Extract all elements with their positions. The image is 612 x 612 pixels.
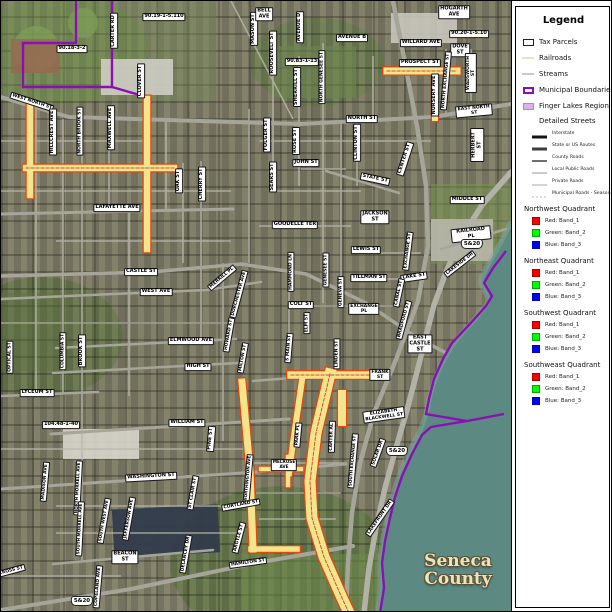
street-class-label: Interstate (552, 131, 574, 136)
street-label: SHERRILL ST (293, 67, 301, 107)
band-item: Green: Band_2 (532, 227, 605, 239)
street-label: JOHN ST (292, 159, 319, 167)
band-label: Blue: Band_3 (545, 346, 581, 352)
band-color-swatch (532, 241, 540, 249)
street-label: CLINTON ST (353, 124, 361, 162)
street-label: LEWIS ST (351, 246, 381, 254)
street-label: GENESEE ST (322, 253, 329, 288)
parcel-id-label: 90.19-1-5.110 (142, 13, 185, 21)
street-class-label: County Roads (552, 155, 584, 160)
detailed-streets-header: Detailed Streets (539, 117, 605, 125)
street-label: WILLARD AVE (400, 39, 442, 47)
street-label: EXCHANGE PL (348, 303, 379, 315)
legend-item: Railroads (522, 50, 605, 66)
route-shield-5-20: 5&20 (71, 596, 93, 606)
band-label: Blue: Band_3 (545, 242, 581, 248)
band-item: Blue: Band_3 (532, 395, 605, 407)
street-label: CLOVER ST (137, 64, 145, 99)
legend-swatch-icon (522, 54, 534, 62)
street-label: LAFAYETTE AVE (93, 204, 140, 212)
map-canvas: CARTER RDMASON STBELL AVEAVENUE DHOGARTH… (1, 1, 511, 612)
legend-item: Streams (522, 66, 605, 82)
street-label: HERBERT ST (470, 128, 484, 162)
legend-item: Municipal Boundaries (522, 82, 605, 98)
street-label: TILLMAN ST (350, 274, 387, 282)
legend-title: Legend (522, 15, 605, 26)
street-label: OPTICAL ST (6, 340, 13, 373)
street-label: BEACON ST (111, 550, 138, 564)
street-label: FOLGER ST (263, 118, 271, 153)
band-item: Red: Band_1 (532, 319, 605, 331)
legend-swatch-icon (522, 102, 534, 110)
band-color-swatch (532, 397, 540, 405)
street-label: AVENUE B (336, 34, 368, 42)
legend-items: Tax ParcelsRailroadsStreamsMunicipal Bou… (522, 34, 605, 114)
legend-box: Legend Tax ParcelsRailroadsStreamsMunici… (515, 6, 610, 608)
street-label: NURSERY AVE (431, 74, 439, 117)
street-label: PROSPECT ST (399, 59, 441, 67)
route-shield-5-20: 5&20 (386, 446, 408, 456)
band-label: Green: Band_2 (545, 282, 586, 288)
band-label: Blue: Band_3 (545, 294, 581, 300)
quadrant-header: Southwest Quadrant (524, 309, 605, 317)
street-label: MAXWELL AVE (107, 106, 115, 151)
street-class-label: Municipal Roads - Seasonal (552, 191, 612, 196)
street-label: SEARS ST (269, 161, 277, 192)
county-label-line2: County (424, 571, 492, 589)
street-label: OAK ST (175, 169, 183, 194)
street-class-label: Private Roads (552, 179, 583, 184)
street-label: GOODELLE TER (272, 221, 318, 229)
street-label: WADSWORTH ST (465, 53, 477, 93)
band-item: Red: Band_1 (532, 267, 605, 279)
legend-item: Tax Parcels (522, 34, 605, 50)
quadrant-header: Northeast Quadrant (524, 257, 605, 265)
band-color-swatch (532, 281, 540, 289)
street-label: JACKSON ST (360, 210, 389, 224)
band-item: Red: Band_1 (532, 215, 605, 227)
band-color-swatch (532, 293, 540, 301)
legend-item-label: Finger Lakes Region (539, 102, 609, 110)
legend-street-classes: InterstateState or US RoutesCounty Roads… (522, 127, 605, 199)
band-color-swatch (532, 345, 540, 353)
street-class-label: State or US Routes (552, 143, 595, 148)
parcel-id-label: 104.48-1-40 (42, 421, 80, 429)
street-label: AVENUE D (296, 11, 304, 43)
street-label: ROSE ST (292, 127, 300, 155)
street-label: HIGH ST (184, 363, 211, 371)
street-label: FRANK ST (369, 369, 390, 381)
street-class-line-icon (532, 184, 547, 203)
legend-item: Finger Lakes Region (522, 98, 605, 114)
band-item: Blue: Band_3 (532, 291, 605, 303)
street-label: WILLIAM ST (168, 419, 205, 427)
street-label: BELL AVE (255, 7, 273, 21)
band-color-swatch (532, 217, 540, 225)
street-class-item: Municipal Roads - Seasonal (532, 187, 605, 199)
legend-swatch-icon (522, 70, 534, 78)
band-item: Green: Band_2 (532, 331, 605, 343)
band-color-swatch (532, 373, 540, 381)
street-label: MELROSE AVE (271, 459, 297, 471)
band-item: Blue: Band_3 (532, 239, 605, 251)
street-label: NORTH GENESEE ST (318, 50, 325, 104)
band-label: Blue: Band_3 (545, 398, 581, 404)
band-color-swatch (532, 333, 540, 341)
band-item: Green: Band_2 (532, 279, 605, 291)
street-label: CHERRY ST (198, 166, 206, 201)
street-label: ELM ST (303, 312, 310, 334)
band-label: Red: Band_1 (545, 322, 579, 328)
street-label: NORTH BROOK ST (76, 106, 83, 155)
band-label: Red: Band_1 (545, 374, 579, 380)
band-label: Green: Band_2 (545, 230, 586, 236)
legend-panel: Legend Tax ParcelsRailroadsStreamsMunici… (511, 1, 612, 612)
street-label: HILLCREST AVE (49, 109, 57, 156)
street-label: HAMMOND LN (287, 252, 294, 292)
legend-swatch-icon (522, 86, 534, 94)
legend-item-label: Railroads (539, 54, 571, 62)
route-shield-5-20: 5&20 (461, 239, 483, 249)
legend-swatch-icon (522, 38, 534, 46)
street-label: HOGARTH AVE (438, 5, 470, 19)
legend-item-label: Streams (539, 70, 568, 78)
street-label: CARTER AL (328, 421, 336, 453)
band-label: Green: Band_2 (545, 334, 586, 340)
street-label: BROOK ST (78, 335, 86, 368)
street-label: GENEVA ST (337, 276, 344, 308)
parcel-id-label: 90.83-1-13 (285, 58, 319, 66)
street-label: CARTER RD (110, 13, 118, 49)
band-label: Green: Band_2 (545, 386, 586, 392)
street-label: LINDEN ST (333, 339, 340, 370)
legend-item-label: Municipal Boundaries (539, 86, 612, 94)
parcel-id-label: 90.18-3-2 (57, 45, 88, 53)
county-label: Seneca County (424, 553, 492, 589)
street-label: EAST CASTLE ST (407, 334, 432, 353)
band-label: Red: Band_1 (545, 270, 579, 276)
map-document: CARTER RDMASON STBELL AVEAVENUE DHOGARTH… (0, 0, 612, 612)
band-item: Green: Band_2 (532, 383, 605, 395)
legend-item-label: Tax Parcels (539, 38, 577, 46)
street-class-label: Local Public Roads (552, 167, 594, 172)
band-item: Blue: Band_3 (532, 343, 605, 355)
street-label: WEST AVE (140, 288, 173, 296)
band-color-swatch (532, 229, 540, 237)
parcel-id-label: 90.20-1-5.10 (449, 30, 489, 38)
quadrant-header: Northwest Quadrant (524, 205, 605, 213)
street-label: MIDDLE ST (450, 196, 485, 204)
street-label: ELMWOOD AVE (168, 337, 214, 345)
street-label: CASTLE ST (124, 268, 158, 276)
legend-quadrants: Northwest QuadrantRed: Band_1Green: Band… (522, 205, 605, 407)
street-label: ROOSEVELT ST (269, 30, 277, 75)
street-label: LYCEUM ST (20, 389, 55, 397)
band-item: Red: Band_1 (532, 371, 605, 383)
street-label: COLT ST (288, 301, 314, 309)
band-label: Red: Band_1 (545, 218, 579, 224)
street-label: COLUMBIA ST (59, 332, 66, 370)
band-color-swatch (532, 269, 540, 277)
quadrant-header: Southweast Quadrant (524, 361, 605, 369)
band-color-swatch (532, 385, 540, 393)
band-color-swatch (532, 321, 540, 329)
street-label: NORTH ST (346, 115, 378, 123)
